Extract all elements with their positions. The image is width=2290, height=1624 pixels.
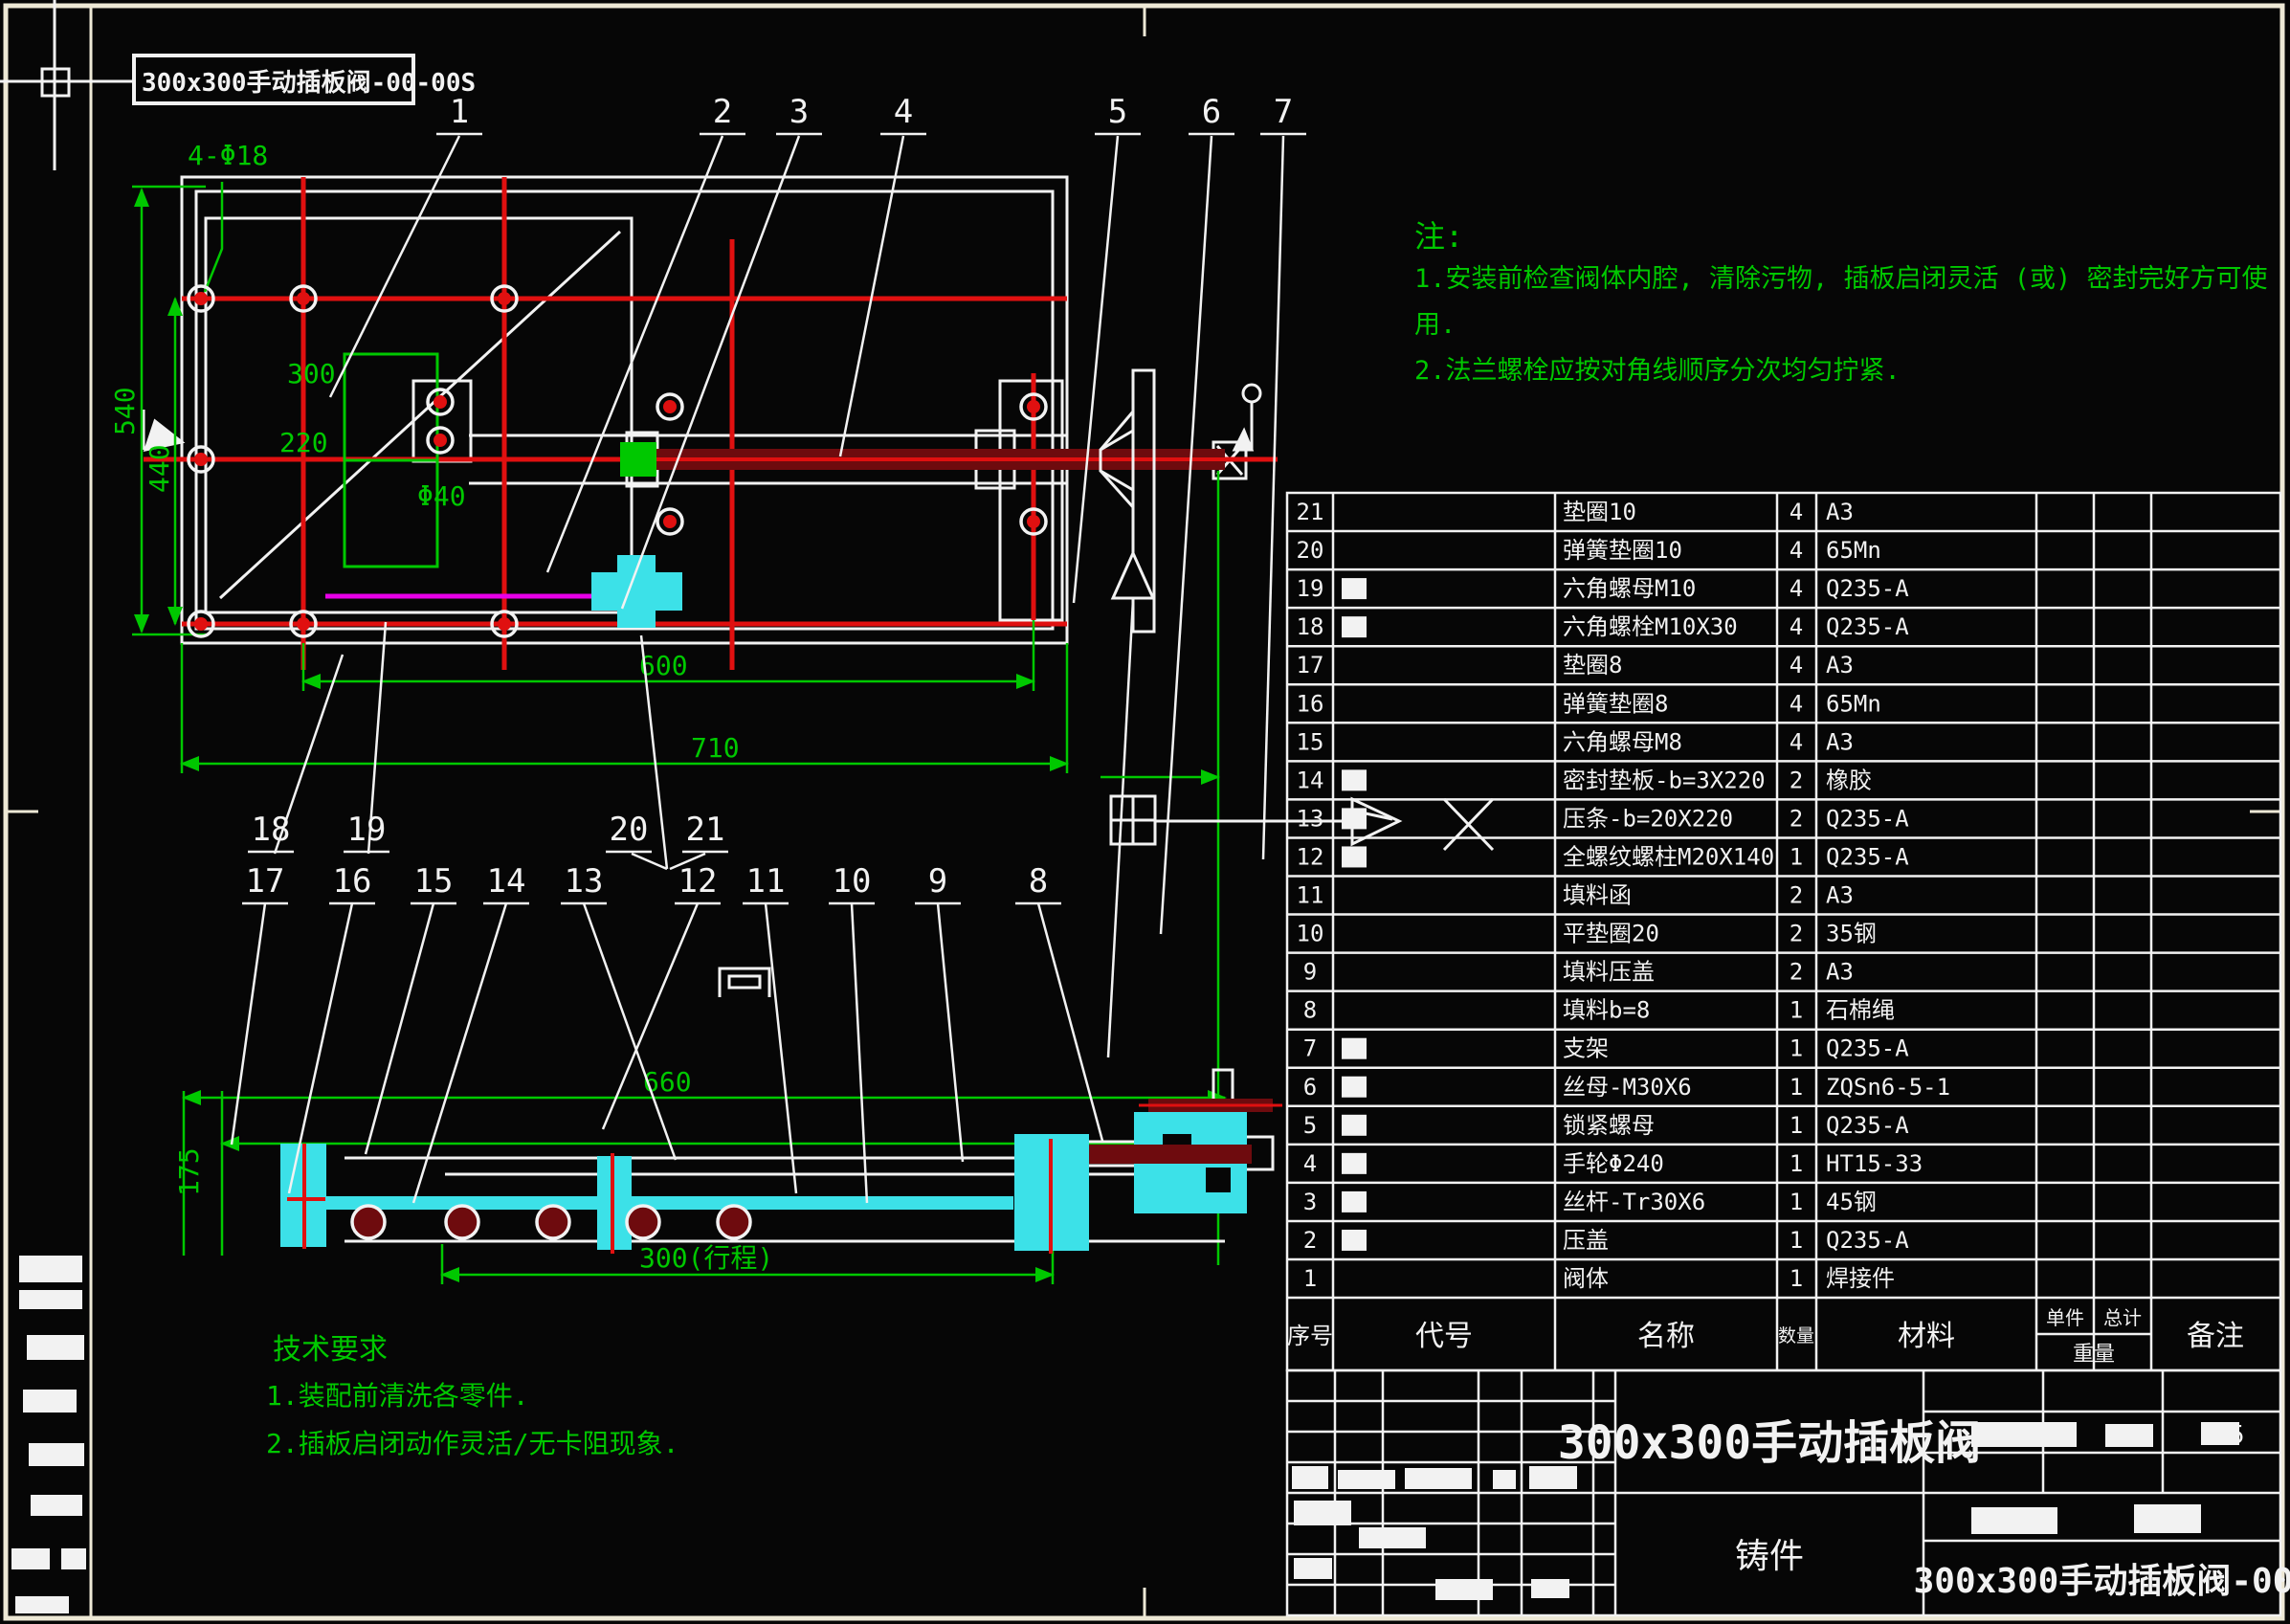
bom-cell-no: 2 [1303, 1227, 1317, 1254]
bom-cell-no: 5 [1303, 1112, 1317, 1139]
balloon-number: 6 [1202, 93, 1221, 131]
drawing-label: 300x300手动插板阀-00-00S [142, 69, 476, 98]
bolt-center [663, 400, 677, 413]
bom-cell-name: 填料b=8 [1563, 997, 1650, 1024]
balloon-number: 4 [894, 93, 913, 131]
bom-outline [1287, 493, 2280, 1370]
bom-header-mat: 材料 [1898, 1320, 1955, 1353]
bolt-center [498, 292, 511, 305]
leader-line [766, 903, 796, 1193]
signature-mark [1294, 1558, 1332, 1579]
bom-cell-qty: 1 [1790, 1265, 1803, 1292]
bom-cell-material: A3 [1826, 499, 1854, 525]
bom-cell-qty: 1 [1790, 1074, 1803, 1101]
bolt-center [297, 617, 310, 631]
signature-mark [1292, 1466, 1328, 1489]
notes-line-3: 2.法兰螺栓应按对角线顺序分次均匀拧紧. [1414, 356, 1901, 386]
surface-finish-icon [1234, 385, 1260, 450]
signature-mark [1405, 1468, 1472, 1489]
dim-inner-w: 300 [287, 358, 336, 389]
bom-cell-name: 弹簧垫圈8 [1563, 690, 1668, 717]
bom-cell-no: 15 [1297, 728, 1324, 755]
title-block-material: 铸件 [1735, 1537, 1804, 1576]
balloon-number: 17 [246, 862, 285, 901]
balloon-numbers: 123456718192021171615141312111098 [242, 93, 1306, 903]
margin-marks [11, 1256, 86, 1613]
bom-cell-material: 45钢 [1826, 1189, 1877, 1215]
bom-cell-qty: 4 [1790, 537, 1803, 564]
bom-cell-material: 石棉绳 [1826, 997, 1895, 1024]
tech-notes-line-2: 2.插板启闭动作灵活/无卡阻现象. [266, 1428, 678, 1459]
bom-cell-no: 19 [1297, 575, 1324, 602]
bom-cell-code-mark [1342, 1230, 1367, 1251]
gate-section-parts [280, 1112, 1247, 1251]
bom-cell-material: Q235-A [1826, 613, 1909, 640]
bom-cell-no: 1 [1303, 1265, 1317, 1292]
bom-cell-material: Q235-A [1826, 1112, 1909, 1139]
margin-mark [19, 1290, 82, 1309]
bom-cell-code-mark [1342, 808, 1367, 829]
bom-cell-no: 17 [1297, 652, 1324, 679]
signature-mark [2134, 1504, 2201, 1533]
bom-cell-material: Q235-A [1826, 1227, 1909, 1254]
bom-cell-no: 18 [1297, 613, 1324, 640]
margin-mark [31, 1495, 82, 1516]
notes-right: 注: 1.安装前检查阀体内腔, 清除污物, 插板启闭灵活 (或) 密封完好方可使… [1414, 218, 2268, 386]
bolt-center [194, 292, 208, 305]
bolt-center [663, 515, 677, 528]
dim-left-inner: 440 [144, 444, 175, 493]
bom-cell-no: 13 [1297, 805, 1324, 832]
bom-cell-code-mark [1342, 578, 1367, 599]
bolt-center [194, 453, 208, 466]
tech-notes: 技术要求 1.装配前清洗各零件. 2.插板启闭动作灵活/无卡阻现象. [266, 1333, 678, 1459]
leader-line [547, 136, 723, 572]
bom-cell-qty: 2 [1790, 767, 1803, 793]
bom-cell-no: 16 [1297, 690, 1324, 717]
bolt-center [1027, 515, 1040, 528]
main-view [144, 177, 1278, 1265]
bolt-section-icon [352, 1206, 385, 1238]
clip-symbol [720, 968, 769, 997]
leader-line [1161, 136, 1212, 934]
bom-cell-code-mark [1342, 1191, 1367, 1212]
balloon-number: 11 [746, 862, 786, 901]
notes-line-2: 用. [1414, 310, 1456, 340]
section-view: 660 175 300(行程) [173, 1066, 1282, 1284]
margin-mark [19, 1256, 82, 1282]
bom-cell-name: 平垫圈20 [1563, 921, 1659, 947]
drawing-label-box: 300x300手动插板阀-00-00S [134, 56, 476, 103]
tech-notes-line-1: 1.装配前清洗各零件. [266, 1380, 529, 1412]
bom-cell-material: A3 [1826, 882, 1854, 909]
leader-line [1074, 136, 1118, 603]
bom-header-code: 代号 [1415, 1320, 1473, 1353]
bolt-section-icon [627, 1206, 659, 1238]
bom-cell-name: 锁紧螺母 [1563, 1112, 1655, 1139]
signature-mark [1971, 1422, 2077, 1447]
bom-cell-no: 14 [1297, 767, 1324, 793]
leader-line [1038, 903, 1102, 1141]
bom-cell-no: 3 [1303, 1189, 1317, 1215]
bolt-center [1027, 400, 1040, 413]
signature-mark [1359, 1527, 1426, 1548]
balloon-number: 10 [833, 862, 872, 901]
leader-line [330, 136, 459, 397]
margin-mark [11, 1548, 50, 1569]
leader-line [632, 854, 667, 869]
tech-notes-title: 技术要求 [273, 1333, 388, 1367]
title-block-scale: 1:5 [2200, 1421, 2245, 1450]
main-view-dimensions [132, 182, 1067, 773]
bom-cell-material: ZQSn6-5-1 [1826, 1074, 1950, 1101]
bom-cell-name: 丝杆-Tr30X6 [1563, 1189, 1705, 1215]
bom-cell-name: 密封垫板-b=3X220 [1563, 767, 1766, 793]
balloon-leaders [232, 136, 1283, 1203]
bom-header-weight: 重量 [2073, 1343, 2115, 1367]
bom-cell-qty: 1 [1790, 997, 1803, 1024]
bom-cell-material: A3 [1826, 652, 1854, 679]
bom-cell-material: 65Mn [1826, 537, 1881, 564]
balloon-number: 12 [678, 862, 718, 901]
bom-header-qty: 数量 [1778, 1325, 1814, 1346]
margin-mark [15, 1596, 69, 1613]
balloon-number: 18 [252, 811, 291, 849]
bom-cell-qty: 4 [1790, 690, 1803, 717]
bom-cell-code-mark [1342, 846, 1367, 867]
margin-mark [23, 1390, 77, 1413]
bom-cell-no: 12 [1297, 843, 1324, 870]
bom-cell-no: 20 [1297, 537, 1324, 564]
signature-mark [1294, 1501, 1351, 1525]
bom-cell-qty: 2 [1790, 921, 1803, 947]
dim-inner-h: 220 [279, 427, 328, 458]
bom-cell-name: 压条-b=20X220 [1563, 805, 1733, 832]
title-block-drawing-no: 300x300手动插板阀-00 [1914, 1562, 2290, 1601]
balloon-number: 7 [1274, 93, 1293, 131]
leader-line [232, 903, 265, 1145]
bom-header-unit: 单件 [2046, 1306, 2084, 1329]
bolt-section-circles [352, 1206, 750, 1238]
bom-cell-name: 手轮Φ240 [1563, 1150, 1664, 1177]
dim-bottom-lower: 710 [691, 732, 740, 764]
dim-left-outer: 540 [109, 387, 141, 435]
signature-mark [1493, 1470, 1516, 1489]
leader-line [938, 903, 963, 1162]
balloon-number: 15 [414, 862, 454, 901]
leader-line [622, 136, 799, 609]
bolt-center [498, 617, 511, 631]
bom-cell-code-mark [1342, 769, 1367, 790]
bom-cell-no: 4 [1303, 1150, 1317, 1177]
signature-mark [1531, 1579, 1569, 1598]
green-dim-box [345, 354, 437, 567]
bom-cell-material: 焊接件 [1826, 1265, 1895, 1292]
cad-sheet: 300x300手动插板阀-00-00S [0, 0, 2290, 1624]
bom-cell-name: 丝母-M30X6 [1563, 1074, 1692, 1101]
screw-shaft-section [1089, 1145, 1252, 1164]
bom-cell-no: 21 [1297, 499, 1324, 525]
bom-cell-qty: 2 [1790, 882, 1803, 909]
title-block: 300x300手动插板阀 铸件 300x300手动插板阀-00 1:5 [1287, 1370, 2290, 1615]
bom-header-remark: 备注 [2187, 1320, 2244, 1353]
bom-cell-material: Q235-A [1826, 843, 1909, 870]
bom-header-name: 名称 [1637, 1320, 1695, 1353]
margin-mark [27, 1335, 84, 1360]
signature-mark [1338, 1470, 1395, 1489]
bom-cell-no: 8 [1303, 997, 1317, 1024]
bom-cell-name: 填料压盖 [1563, 959, 1655, 986]
balloon-number: 13 [565, 862, 604, 901]
bom-cell-name: 垫圈10 [1563, 499, 1636, 525]
balloon-number: 8 [1029, 862, 1048, 901]
balloon-number: 2 [713, 93, 732, 131]
bom-cell-material: 35钢 [1826, 921, 1877, 947]
notes-line-1: 1.安装前检查阀体内腔, 清除污物, 插板启闭灵活 (或) 密封完好方可使 [1414, 264, 2268, 294]
bom-cell-qty: 1 [1790, 843, 1803, 870]
bolt-center [434, 395, 447, 409]
bom-cell-qty: 1 [1790, 1035, 1803, 1062]
bom-table: 21垫圈104A320弹簧垫圈10465Mn19六角螺母M104Q235-A18… [1287, 493, 2280, 1370]
bom-cell-no: 10 [1297, 921, 1324, 947]
bom-cell-material: Q235-A [1826, 1035, 1909, 1062]
balloon-number: 3 [789, 93, 809, 131]
balloon-number: 21 [686, 811, 725, 849]
bom-cell-material: Q235-A [1826, 575, 1909, 602]
bom-cell-name: 垫圈8 [1563, 652, 1622, 679]
balloon-number: 9 [928, 862, 947, 901]
bom-cell-code-mark [1342, 1115, 1367, 1136]
bom-cell-name: 压盖 [1563, 1227, 1609, 1254]
bom-cell-name: 全螺纹螺柱M20X140 [1563, 843, 1774, 870]
bom-cell-material: 65Mn [1826, 690, 1881, 717]
balloon-number: 1 [450, 93, 469, 131]
signature-mark [1971, 1507, 2057, 1534]
dim-sec-left: 175 [173, 1147, 205, 1196]
balloon-number: 19 [347, 811, 387, 849]
signature-mark [2105, 1424, 2153, 1447]
bom-cell-name: 支架 [1563, 1035, 1609, 1062]
leader-line [1263, 136, 1283, 859]
title-block-title: 300x300手动插板阀 [1558, 1416, 1981, 1470]
bom-cell-material: HT15-33 [1826, 1150, 1923, 1177]
bom-cell-no: 11 [1297, 882, 1324, 909]
bom-cell-qty: 1 [1790, 1189, 1803, 1215]
bom-cell-qty: 1 [1790, 1227, 1803, 1254]
balloon-number: 5 [1108, 93, 1127, 131]
bom-cell-code-mark [1342, 1077, 1367, 1098]
bom-header-no: 序号 [1287, 1323, 1333, 1349]
bom-cell-name: 填料函 [1563, 882, 1632, 909]
bom-cell-qty: 4 [1790, 499, 1803, 525]
bom-headers: 序号 代号 名称 数量 材料 单件 总计 重量 备注 [1287, 1306, 2244, 1367]
bom-cell-no: 7 [1303, 1035, 1317, 1062]
dim-sec-stroke: 300(行程) [639, 1242, 773, 1274]
bom-cell-code-mark [1342, 1153, 1367, 1174]
signature-mark [1435, 1579, 1493, 1600]
dim-gland: Φ40 [417, 480, 466, 512]
bom-cell-name: 六角螺母M10 [1563, 575, 1696, 602]
bom-cell-name: 六角螺母M8 [1563, 728, 1682, 755]
bom-cell-qty: 1 [1790, 1150, 1803, 1177]
bom-cell-no: 9 [1303, 959, 1317, 986]
bolt-section-icon [537, 1206, 569, 1238]
bolt-center [297, 292, 310, 305]
bom-cell-code-mark [1342, 616, 1367, 637]
leader-line [366, 903, 434, 1154]
bom-cell-qty: 4 [1790, 575, 1803, 602]
bom-header-total: 总计 [2103, 1306, 2142, 1329]
balloon-number: 14 [487, 862, 526, 901]
bom-cell-qty: 2 [1790, 805, 1803, 832]
bom-cell-material: A3 [1826, 959, 1854, 986]
bolt-section-icon [446, 1206, 478, 1238]
bom-cell-qty: 1 [1790, 1112, 1803, 1139]
margin-mark [61, 1548, 86, 1569]
dim-bolt-note: 4-Φ18 [188, 140, 268, 171]
bom-cell-material: 橡胶 [1826, 767, 1872, 793]
balloon-number: 16 [333, 862, 372, 901]
bom-cell-name: 弹簧垫圈10 [1563, 537, 1682, 564]
section-cut-arrow [1108, 553, 1153, 1057]
bom-cell-qty: 4 [1790, 652, 1803, 679]
balloon-number: 20 [610, 811, 649, 849]
dim-sec-top: 660 [643, 1066, 692, 1098]
bom-cell-no: 6 [1303, 1074, 1317, 1101]
bom-cell-name: 六角螺栓M10X30 [1563, 613, 1738, 640]
bom-cell-qty: 4 [1790, 728, 1803, 755]
bolt-center [434, 434, 447, 447]
bom-cell-qty: 2 [1790, 959, 1803, 986]
cad-drawing-canvas: 300x300手动插板阀-00-00S [0, 0, 2290, 1624]
bolt-center [194, 617, 208, 631]
bolt-section-icon [718, 1206, 750, 1238]
bom-cell-material: A3 [1826, 728, 1854, 755]
leader-line [584, 903, 676, 1160]
bom-cell-qty: 4 [1790, 613, 1803, 640]
bom-cell-name: 阀体 [1563, 1265, 1609, 1292]
notes-title: 注: [1414, 218, 1463, 255]
bom-cell-code-mark [1342, 1038, 1367, 1059]
margin-mark [29, 1443, 84, 1466]
bom-cell-material: Q235-A [1826, 805, 1909, 832]
registration-cross-icon [0, 0, 142, 170]
dim-blob [620, 442, 656, 477]
